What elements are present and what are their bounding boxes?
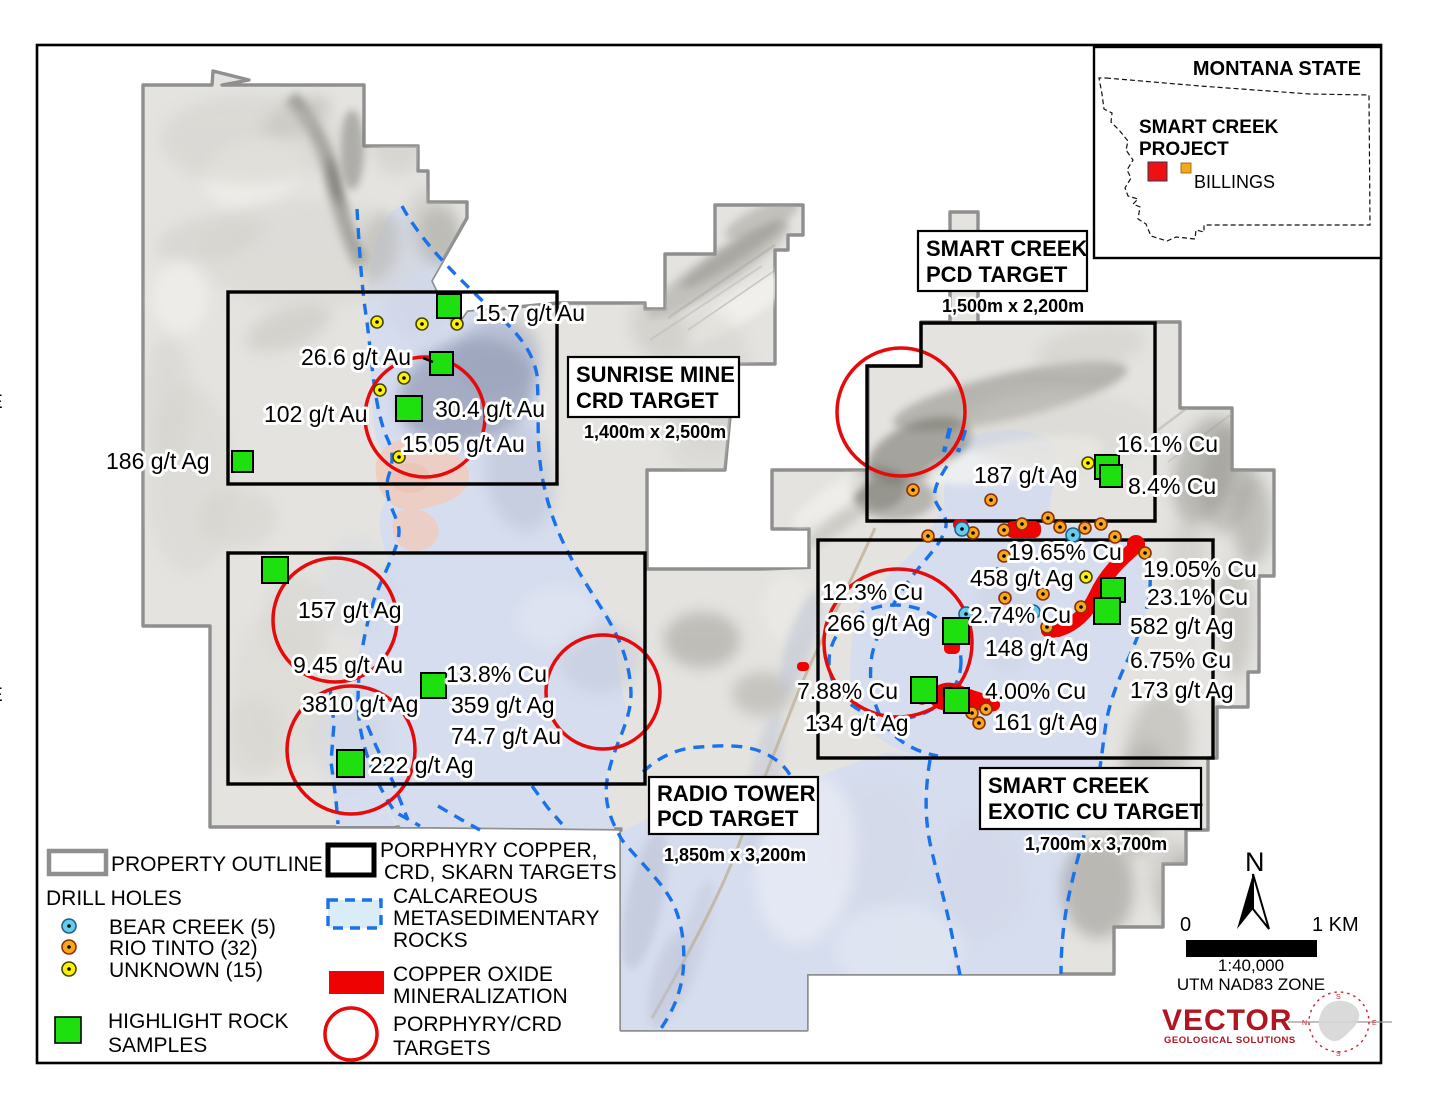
svg-text:BEAR CREEK (5): BEAR CREEK (5)	[109, 916, 276, 939]
svg-text:GEOLOGICAL SOLUTIONS: GEOLOGICAL SOLUTIONS	[1164, 1035, 1296, 1046]
svg-text:359 g/t Ag: 359 g/t Ag	[451, 692, 555, 718]
svg-text:16.1% Cu: 16.1% Cu	[1117, 431, 1218, 457]
svg-text:SAMPLES: SAMPLES	[108, 1034, 207, 1057]
svg-text:RADIO TOWER: RADIO TOWER	[657, 781, 816, 806]
svg-text:SMART CREEK: SMART CREEK	[1139, 117, 1279, 138]
svg-text:1,500m x 2,200m: 1,500m x 2,200m	[942, 296, 1084, 316]
svg-text:12.3% Cu: 12.3% Cu	[822, 579, 923, 605]
svg-text:7.88% Cu: 7.88% Cu	[797, 678, 898, 704]
svg-text:CRD TARGET: CRD TARGET	[576, 388, 719, 413]
svg-text:13.8% Cu: 13.8% Cu	[446, 661, 547, 687]
svg-text:19.65% Cu: 19.65% Cu	[1008, 539, 1122, 565]
svg-text:PROPERTY OUTLINE: PROPERTY OUTLINE	[111, 853, 323, 876]
svg-text:8.4% Cu: 8.4% Cu	[1128, 473, 1216, 499]
svg-text:266 g/t Ag: 266 g/t Ag	[827, 610, 931, 636]
svg-text:BILLINGS: BILLINGS	[1194, 172, 1275, 192]
svg-text:PCD TARGET: PCD TARGET	[657, 806, 799, 831]
svg-text:MINERALIZATION: MINERALIZATION	[393, 985, 568, 1008]
svg-text:EXOTIC CU TARGET: EXOTIC CU TARGET	[988, 799, 1203, 824]
svg-text:102 g/t Au: 102 g/t Au	[264, 401, 368, 427]
svg-text:S: S	[1336, 994, 1341, 1001]
svg-text:CALCAREOUS: CALCAREOUS	[393, 885, 538, 908]
svg-text:4.00% Cu: 4.00% Cu	[985, 678, 1086, 704]
svg-text:9.45 g/t Au: 9.45 g/t Au	[293, 652, 403, 678]
svg-text:1:40,000: 1:40,000	[1218, 956, 1284, 975]
svg-text:E: E	[0, 392, 3, 413]
svg-text:N: N	[1245, 847, 1265, 877]
svg-text:DRILL HOLES: DRILL HOLES	[46, 887, 182, 910]
svg-text:PORPHYRY/CRD: PORPHYRY/CRD	[393, 1013, 562, 1036]
svg-text:157 g/t Ag: 157 g/t Ag	[298, 597, 402, 623]
svg-text:74.7 g/t Au: 74.7 g/t Au	[451, 723, 561, 749]
svg-text:30.4 g/t Au: 30.4 g/t Au	[435, 396, 545, 422]
svg-text:23.1% Cu: 23.1% Cu	[1147, 584, 1248, 610]
svg-text:582 g/t Ag: 582 g/t Ag	[1130, 613, 1234, 639]
svg-text:UTM NAD83 ZONE: UTM NAD83 ZONE	[1177, 975, 1325, 994]
svg-text:S: S	[1336, 1051, 1341, 1058]
svg-text:SUNRISE MINE: SUNRISE MINE	[576, 362, 735, 387]
svg-text:6.75% Cu: 6.75% Cu	[1130, 647, 1231, 673]
svg-text:15.7 g/t Au: 15.7 g/t Au	[475, 300, 585, 326]
svg-text:METASEDIMENTARY: METASEDIMENTARY	[393, 907, 600, 930]
svg-text:3810 g/t Ag: 3810 g/t Ag	[302, 691, 418, 717]
svg-text:COPPER OXIDE: COPPER OXIDE	[393, 963, 553, 986]
svg-text:186 g/t Ag: 186 g/t Ag	[106, 448, 210, 474]
svg-text:222 g/t Ag: 222 g/t Ag	[370, 752, 474, 778]
svg-text:1,850m x 3,200m: 1,850m x 3,200m	[664, 845, 806, 865]
svg-text:CRD, SKARN TARGETS: CRD, SKARN TARGETS	[384, 861, 617, 884]
svg-text:UNKNOWN (15): UNKNOWN (15)	[109, 959, 263, 982]
svg-text:SMART CREEK: SMART CREEK	[926, 236, 1087, 261]
svg-text:19.05% Cu: 19.05% Cu	[1143, 556, 1257, 582]
svg-text:SMART CREEK: SMART CREEK	[988, 773, 1149, 798]
svg-text:26.6 g/t Au: 26.6 g/t Au	[301, 344, 411, 370]
svg-text:173 g/t Ag: 173 g/t Ag	[1130, 677, 1234, 703]
svg-text:1,700m x 3,700m: 1,700m x 3,700m	[1025, 834, 1167, 854]
svg-text:TARGETS: TARGETS	[393, 1037, 491, 1060]
svg-text:0: 0	[1180, 914, 1191, 936]
svg-text:E: E	[1372, 1020, 1377, 1027]
svg-text:187 g/t Ag: 187 g/t Ag	[974, 462, 1078, 488]
svg-text:PCD TARGET: PCD TARGET	[926, 262, 1068, 287]
svg-text:PORPHYRY COPPER,: PORPHYRY COPPER,	[380, 839, 597, 862]
svg-text:E: E	[0, 685, 3, 706]
svg-text:RIO TINTO (32): RIO TINTO (32)	[109, 937, 258, 960]
svg-text:161 g/t Ag: 161 g/t Ag	[994, 709, 1098, 735]
svg-text:VECTOR: VECTOR	[1162, 1004, 1292, 1037]
svg-text:148 g/t Ag: 148 g/t Ag	[985, 635, 1089, 661]
svg-text:HIGHLIGHT ROCK: HIGHLIGHT ROCK	[108, 1010, 288, 1033]
svg-text:458 g/t Ag: 458 g/t Ag	[970, 565, 1074, 591]
svg-text:15.05 g/t Au: 15.05 g/t Au	[402, 431, 525, 457]
svg-text:PROJECT: PROJECT	[1139, 139, 1229, 160]
svg-text:MONTANA STATE: MONTANA STATE	[1193, 58, 1361, 80]
svg-text:2.74% Cu: 2.74% Cu	[970, 602, 1071, 628]
svg-text:N: N	[1302, 1020, 1307, 1027]
svg-text:1 KM: 1 KM	[1312, 914, 1359, 936]
svg-text:ROCKS: ROCKS	[393, 929, 468, 952]
svg-text:1,400m x 2,500m: 1,400m x 2,500m	[584, 422, 726, 442]
svg-text:134 g/t Ag: 134 g/t Ag	[805, 710, 909, 736]
